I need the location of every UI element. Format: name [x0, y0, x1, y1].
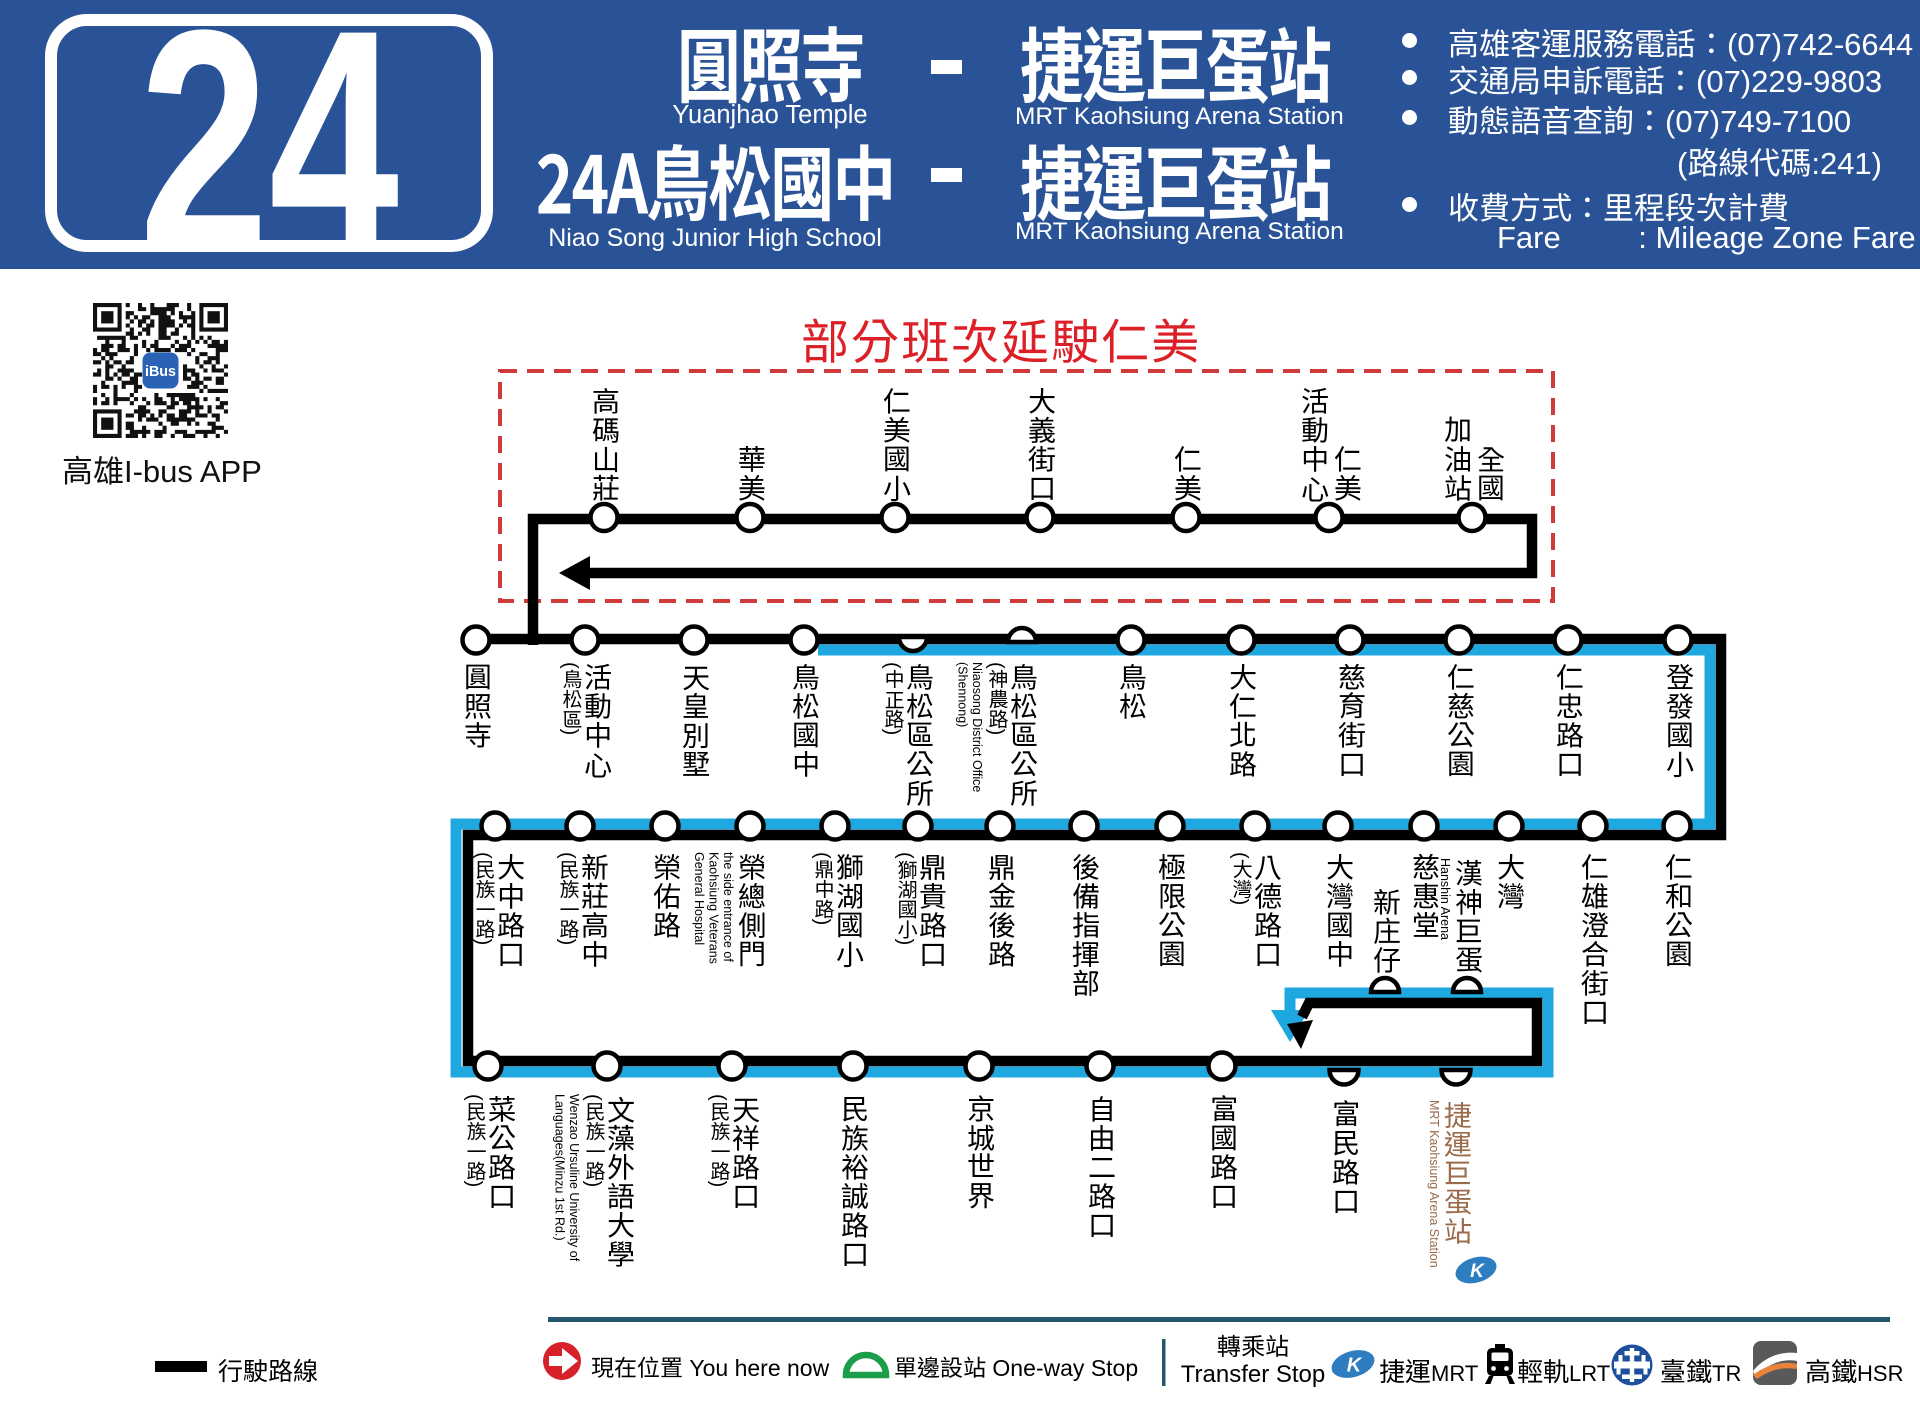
svg-text:K: K: [1347, 1355, 1363, 1377]
